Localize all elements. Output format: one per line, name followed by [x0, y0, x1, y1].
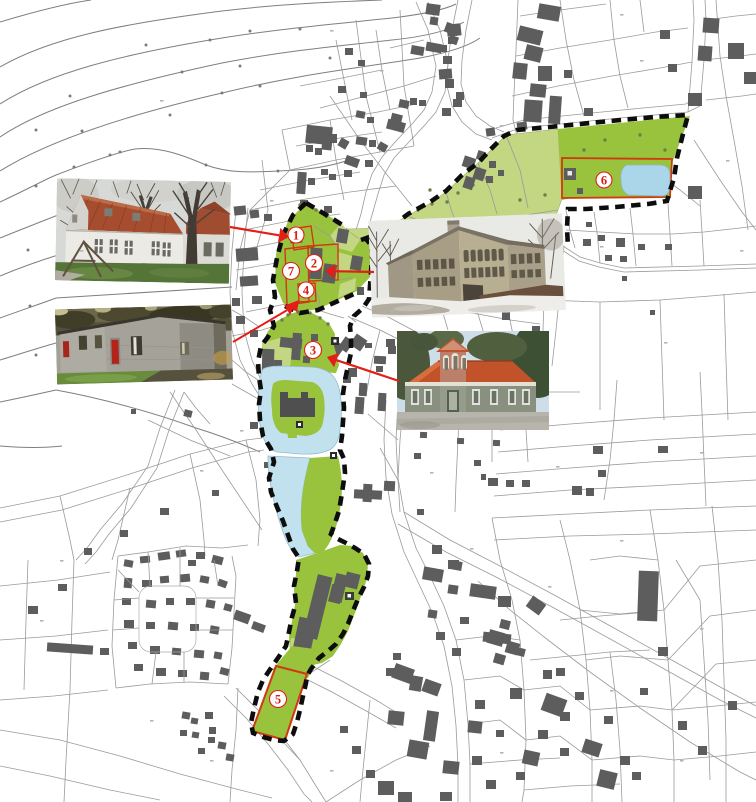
svg-text:6: 6: [601, 173, 607, 187]
svg-text:2: 2: [311, 256, 317, 270]
svg-text:1: 1: [293, 228, 299, 242]
svg-text:3: 3: [310, 343, 316, 357]
svg-text:4: 4: [303, 283, 310, 297]
svg-text:5: 5: [275, 692, 281, 706]
svg-text:7: 7: [288, 264, 294, 278]
